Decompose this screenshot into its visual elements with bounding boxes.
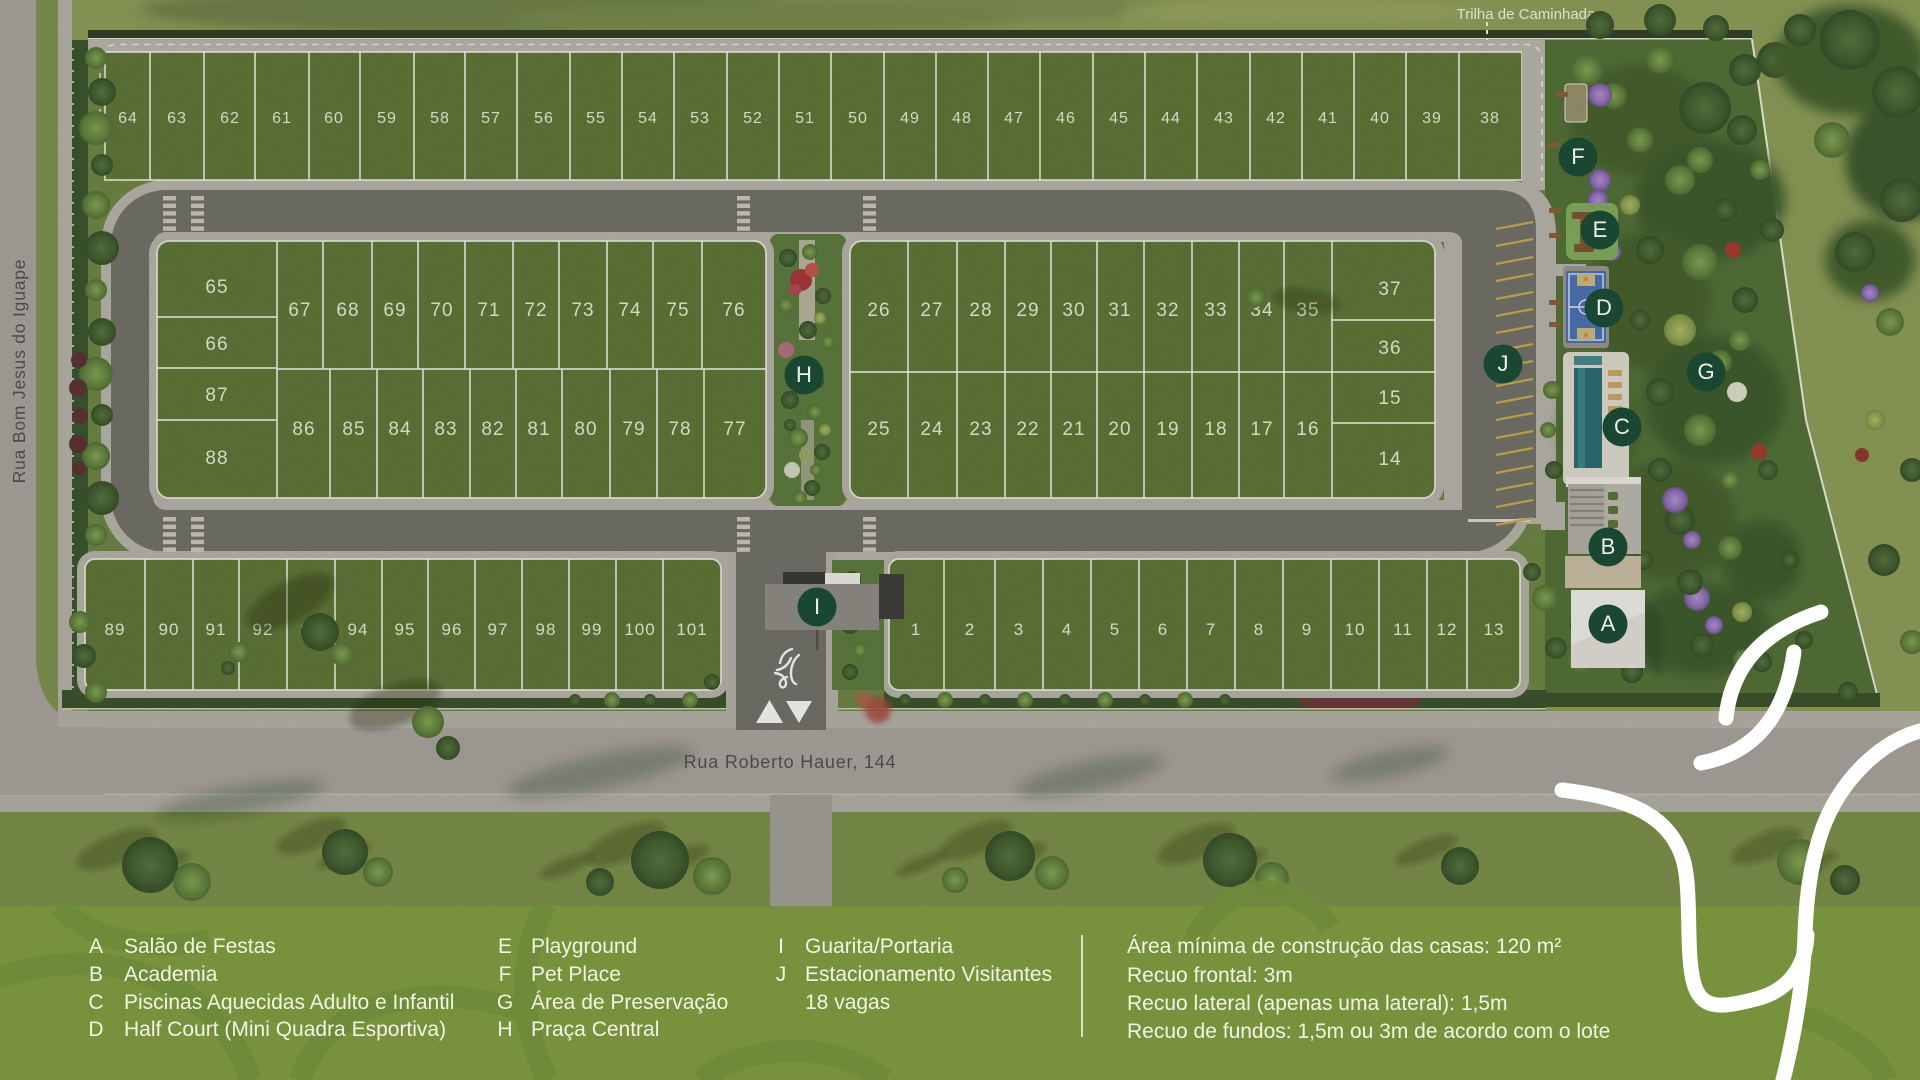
svg-text:E: E (498, 935, 512, 958)
svg-text:H: H (796, 362, 812, 387)
svg-text:Rua Roberto Hauer, 144: Rua Roberto Hauer, 144 (684, 752, 897, 772)
svg-text:D: D (88, 1018, 103, 1041)
svg-text:Recuo frontal: 3m: Recuo frontal: 3m (1127, 964, 1293, 987)
svg-text:Área de Preservação: Área de Preservação (531, 991, 728, 1014)
svg-text:Recuo de fundos: 1,5m ou 3m de: Recuo de fundos: 1,5m ou 3m de acordo co… (1127, 1020, 1610, 1043)
svg-text:I: I (778, 935, 784, 958)
svg-text:Guarita/Portaria: Guarita/Portaria (805, 935, 954, 958)
svg-text:A: A (89, 935, 103, 958)
svg-text:J: J (1498, 351, 1509, 376)
svg-text:F: F (499, 963, 512, 986)
svg-text:Rua Bom Jesus do Iguape: Rua Bom Jesus do Iguape (9, 259, 29, 484)
svg-text:18 vagas: 18 vagas (805, 991, 890, 1014)
svg-text:G: G (497, 991, 513, 1014)
svg-text:A: A (1601, 611, 1616, 636)
svg-text:C: C (1614, 414, 1630, 439)
svg-text:H: H (497, 1018, 512, 1041)
svg-text:Half Court (Mini Quadra Esport: Half Court (Mini Quadra Esportiva) (124, 1018, 446, 1041)
svg-text:E: E (1593, 217, 1608, 242)
svg-text:Playground: Playground (531, 935, 637, 958)
svg-text:D: D (1596, 295, 1612, 320)
svg-text:Recuo lateral (apenas uma late: Recuo lateral (apenas uma lateral): 1,5m (1127, 992, 1508, 1015)
svg-text:Estacionamento Visitantes: Estacionamento Visitantes (805, 963, 1052, 986)
svg-text:Salão de Festas: Salão de Festas (124, 935, 276, 958)
svg-text:Área mínima de construção das: Área mínima de construção das casas: 120… (1127, 935, 1561, 958)
svg-text:I: I (814, 594, 820, 619)
svg-text:Academia: Academia (124, 963, 218, 986)
svg-text:F: F (1571, 144, 1584, 169)
svg-text:C: C (88, 991, 103, 1014)
svg-text:Pet Place: Pet Place (531, 963, 621, 986)
svg-text:Piscinas Aquecidas Adulto e In: Piscinas Aquecidas Adulto e Infantil (124, 991, 454, 1014)
svg-text:B: B (1601, 534, 1616, 559)
svg-text:B: B (89, 963, 103, 986)
svg-text:G: G (1697, 359, 1714, 384)
svg-text:Praça Central: Praça Central (531, 1018, 659, 1041)
svg-text:J: J (776, 963, 787, 986)
